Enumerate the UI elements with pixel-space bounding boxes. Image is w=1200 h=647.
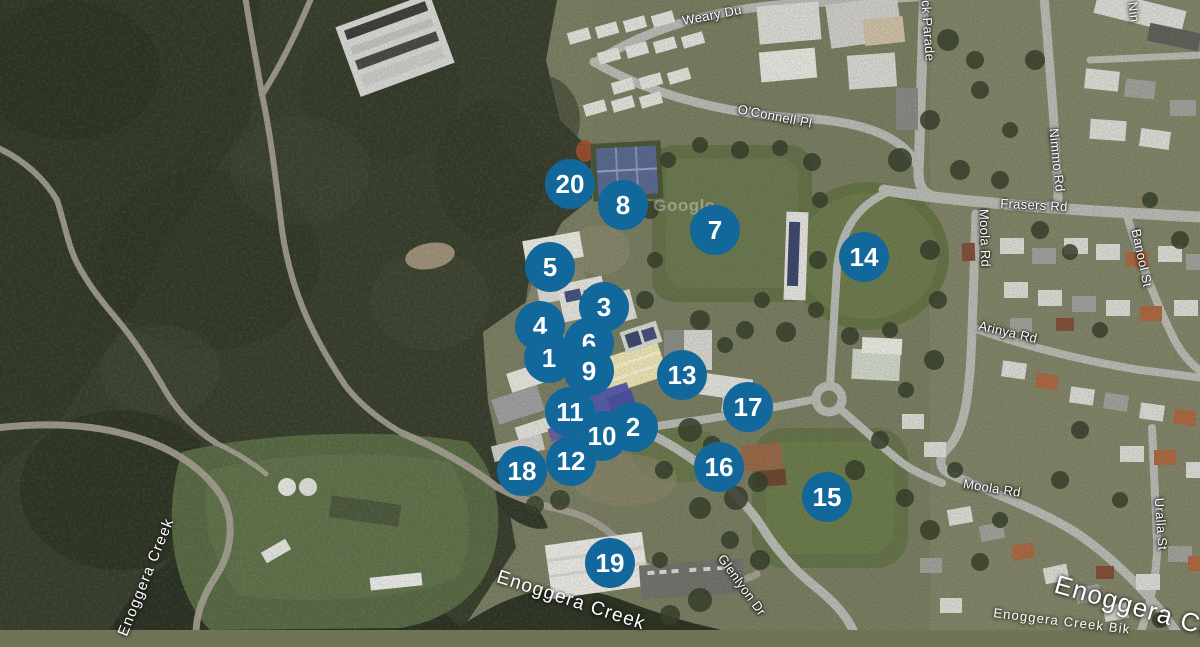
- map-marker-5[interactable]: 5: [525, 242, 575, 292]
- map-canvas: { "map": { "watermark": "Google", "marke…: [0, 0, 1200, 630]
- map-marker-13[interactable]: 13: [657, 350, 707, 400]
- map-marker-3[interactable]: 3: [579, 282, 629, 332]
- forest-noise: [0, 0, 592, 630]
- map-marker-10[interactable]: 10: [577, 411, 627, 461]
- map-marker-19[interactable]: 19: [585, 538, 635, 588]
- map-marker-16[interactable]: 16: [694, 442, 744, 492]
- map-marker-8[interactable]: 8: [598, 180, 648, 230]
- map-marker-7[interactable]: 7: [690, 205, 740, 255]
- map-marker-18[interactable]: 18: [497, 446, 547, 496]
- map-marker-17[interactable]: 17: [723, 382, 773, 432]
- map-marker-20[interactable]: 20: [545, 159, 595, 209]
- map-marker-14[interactable]: 14: [839, 232, 889, 282]
- map-marker-15[interactable]: 15: [802, 472, 852, 522]
- map-marker-9[interactable]: 9: [564, 346, 614, 396]
